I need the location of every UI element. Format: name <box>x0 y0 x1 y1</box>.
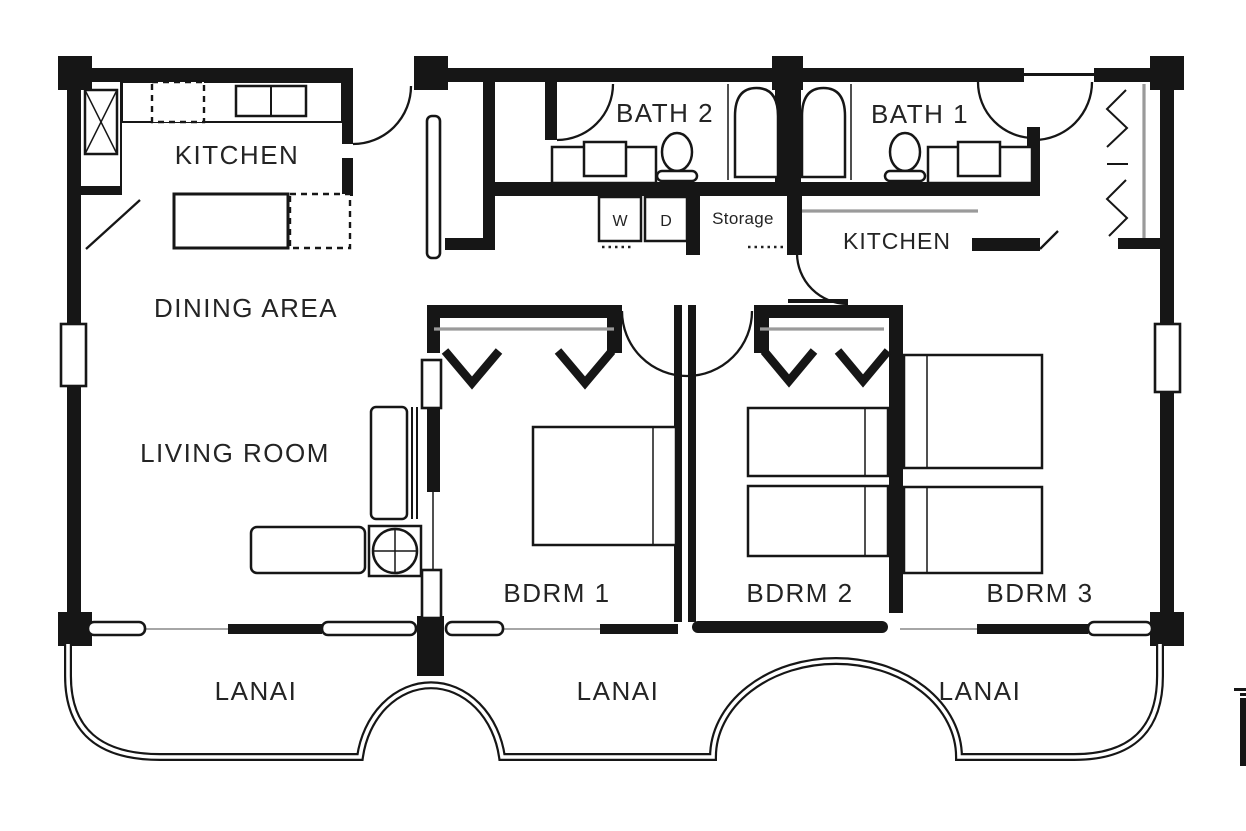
bath2-door-stub <box>545 68 557 140</box>
island-counter <box>174 194 288 248</box>
right-wall-lower <box>1160 390 1174 632</box>
right-closet <box>1107 84 1144 238</box>
sliding-door-panel-2 <box>322 622 416 635</box>
edge-wall-fragment <box>1240 698 1246 766</box>
window-left-wall <box>61 324 86 386</box>
column-top-right <box>1150 56 1184 90</box>
bath2-tub <box>735 88 778 177</box>
bath2-toilet-bowl <box>662 133 692 171</box>
label-bdrm2: BDRM 2 <box>746 578 853 608</box>
bdrm1-bdrm2-wall-b <box>688 305 696 622</box>
lanai-pier <box>417 616 444 676</box>
closet-right-bottom-stub <box>1118 238 1168 249</box>
partition-pane-lower <box>422 570 441 618</box>
bath2-sink <box>584 142 626 176</box>
label-living-room: LIVING ROOM <box>140 438 330 468</box>
left-wall-upper <box>67 68 81 326</box>
floor-plan: KITCHEN DINING AREA LIVING ROOM BATH 2 B… <box>0 0 1246 831</box>
bdrm2-bed-2 <box>748 486 888 556</box>
kitchen-right-door-arc <box>797 253 848 304</box>
bath2-toilet-tank <box>657 171 697 181</box>
column-top-mid-left <box>414 56 448 90</box>
label-bath2: BATH 2 <box>616 98 714 128</box>
bedroom-closets <box>434 329 888 383</box>
window-right-wall <box>1155 324 1180 392</box>
kitchen-left-wall-upper <box>342 82 353 144</box>
door-header-line <box>1024 73 1096 76</box>
edge-dash-1 <box>1234 688 1246 691</box>
bdrm2-bed-1 <box>748 408 888 476</box>
label-lanai-3: LANAI <box>939 676 1022 706</box>
island-extension-dashed <box>290 194 350 248</box>
label-storage: Storage <box>712 209 774 228</box>
right-wall-upper <box>1160 68 1174 326</box>
kitchen-left-door-arc <box>353 86 411 144</box>
bdrm1-bed <box>533 427 676 545</box>
bath2-door-arc <box>557 84 613 140</box>
label-lanai-1: LANAI <box>215 676 298 706</box>
bath1-door-arc <box>978 82 1034 138</box>
lanai-wall-band <box>88 621 1152 635</box>
partition-pane-upper <box>422 360 441 408</box>
kitchen-right-jamb <box>1040 231 1058 249</box>
label-bath1: BATH 1 <box>871 99 969 129</box>
top-wall-left <box>76 68 353 82</box>
closet-zigzag-2 <box>1107 180 1127 236</box>
hanger-icon-3 <box>764 351 814 381</box>
bdrm3-bed-2 <box>904 487 1042 573</box>
hanger-icon-2 <box>558 351 612 383</box>
kitchen-right-bottom-wall <box>972 238 1040 251</box>
sofa-vertical <box>371 407 407 519</box>
floor-plan-svg: KITCHEN DINING AREA LIVING ROOM BATH 2 B… <box>0 0 1246 831</box>
kitchen-left-wall-lower <box>342 158 353 196</box>
sill-segment-2 <box>600 624 678 634</box>
living-room-furniture <box>251 407 421 576</box>
sill-segment-3 <box>977 624 1088 634</box>
dishwasher-dashed <box>152 82 204 122</box>
pantry-stub <box>78 186 122 195</box>
label-washer: W <box>612 213 628 230</box>
label-lanai-2: LANAI <box>577 676 660 706</box>
label-kitchen-right: KITCHEN <box>843 228 951 254</box>
top-wall-middle <box>414 68 1024 82</box>
label-kitchen-left: KITCHEN <box>175 140 300 170</box>
storage-right-wall <box>787 193 802 255</box>
sofa-horizontal <box>251 527 365 573</box>
entry-wall-stub <box>445 238 495 250</box>
column-top-left <box>58 56 92 90</box>
left-wall-lower <box>67 384 81 632</box>
hanger-icon-1 <box>445 351 499 383</box>
living-partition-wall <box>427 406 440 492</box>
bdrm2-bdrm3-wall <box>889 305 903 613</box>
sliding-door-panel-4 <box>1088 622 1152 635</box>
entry-door-leaf <box>427 116 440 258</box>
edge-fragment <box>1234 688 1246 766</box>
bdrm2-closet-wall <box>754 305 903 318</box>
bdrm2-sill <box>692 621 888 633</box>
column-bottom-right <box>1150 612 1184 646</box>
pantry-door-leaf <box>86 200 140 249</box>
bath1-toilet-tank <box>885 171 925 181</box>
beds <box>533 355 1042 573</box>
bdrm1-closet-wall <box>427 305 621 318</box>
edge-dash-2 <box>1240 693 1246 696</box>
bath1-sink <box>958 142 1000 176</box>
sliding-door-panel-3 <box>446 622 503 635</box>
sliding-door-panel-1 <box>88 622 145 635</box>
right-closet-door-arc <box>1034 82 1092 140</box>
label-dryer: D <box>660 213 672 230</box>
bath1-toilet-bowl <box>890 133 920 171</box>
label-dining-area: DINING AREA <box>154 293 338 323</box>
label-bdrm1: BDRM 1 <box>503 578 610 608</box>
entry-wall <box>483 70 495 245</box>
label-bdrm3: BDRM 3 <box>986 578 1093 608</box>
hanger-icon-4 <box>838 351 888 381</box>
bath1-tub <box>802 88 845 177</box>
sill-segment-1 <box>228 624 322 634</box>
bdrm3-bed-1 <box>904 355 1042 468</box>
corridor-doors-arc <box>622 311 752 376</box>
closet-zigzag-1 <box>1107 90 1127 147</box>
